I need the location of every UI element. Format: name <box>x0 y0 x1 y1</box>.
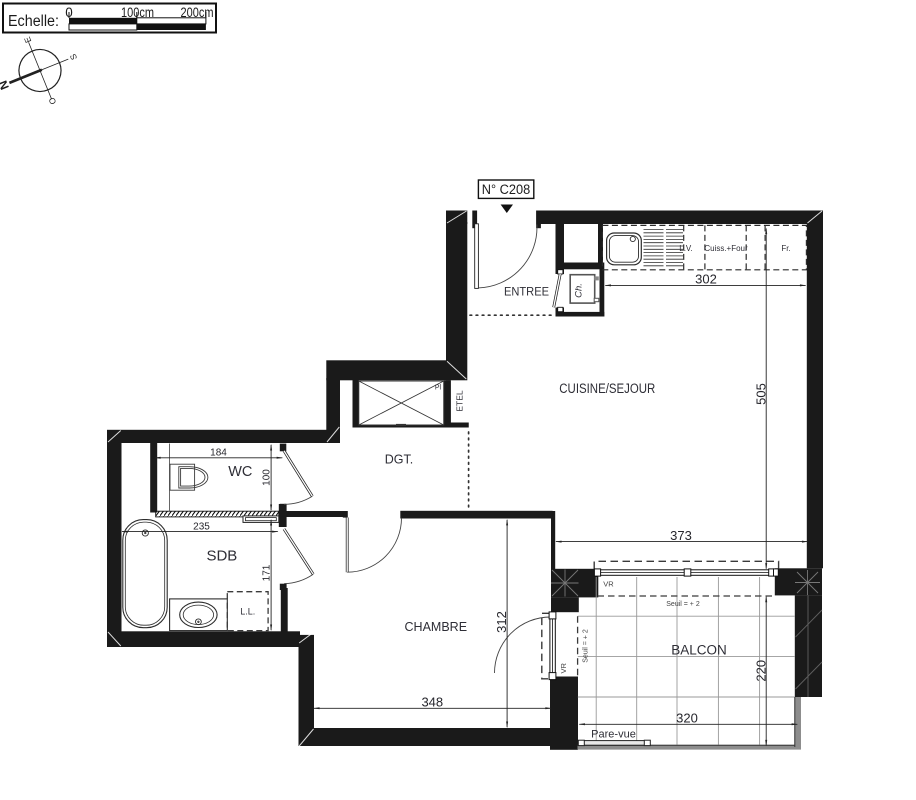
svg-text:Seuil = + 2: Seuil = + 2 <box>582 629 589 663</box>
svg-text:312: 312 <box>494 611 509 633</box>
svg-text:ETEL: ETEL <box>455 390 465 412</box>
svg-text:Seuil = + 2: Seuil = + 2 <box>666 601 700 608</box>
svg-text:BALCON: BALCON <box>671 642 727 657</box>
svg-text:CUISINE/SEJOUR: CUISINE/SEJOUR <box>559 381 655 396</box>
svg-text:CHAMBRE: CHAMBRE <box>405 620 468 634</box>
svg-text:373: 373 <box>670 528 692 543</box>
svg-text:VR: VR <box>559 663 568 674</box>
svg-text:505: 505 <box>753 383 768 405</box>
svg-text:N° C208: N° C208 <box>482 182 531 197</box>
svg-text:Fr.: Fr. <box>781 244 790 253</box>
svg-text:ENTREE: ENTREE <box>504 285 549 299</box>
svg-text:DGT.: DGT. <box>385 453 413 467</box>
svg-text:Pare-vue: Pare-vue <box>591 729 636 741</box>
svg-text:348: 348 <box>421 695 443 710</box>
svg-text:L.L.: L.L. <box>240 607 255 617</box>
svg-text:Echelle:: Echelle: <box>8 13 59 30</box>
svg-text:SDB: SDB <box>206 547 237 564</box>
svg-text:100: 100 <box>262 469 273 486</box>
svg-text:220: 220 <box>753 660 768 682</box>
svg-text:235: 235 <box>193 521 210 532</box>
svg-text:Ch.: Ch. <box>574 283 585 298</box>
svg-text:Cuiss.+Four: Cuiss.+Four <box>704 244 748 253</box>
svg-text:Pl: Pl <box>435 385 442 392</box>
svg-text:VR: VR <box>603 579 614 588</box>
svg-text:L.V.: L.V. <box>679 244 693 253</box>
svg-text:320: 320 <box>676 711 698 726</box>
svg-text:WC: WC <box>228 464 252 480</box>
svg-text:171: 171 <box>262 564 273 581</box>
svg-text:302: 302 <box>695 272 717 287</box>
svg-text:184: 184 <box>210 447 227 458</box>
